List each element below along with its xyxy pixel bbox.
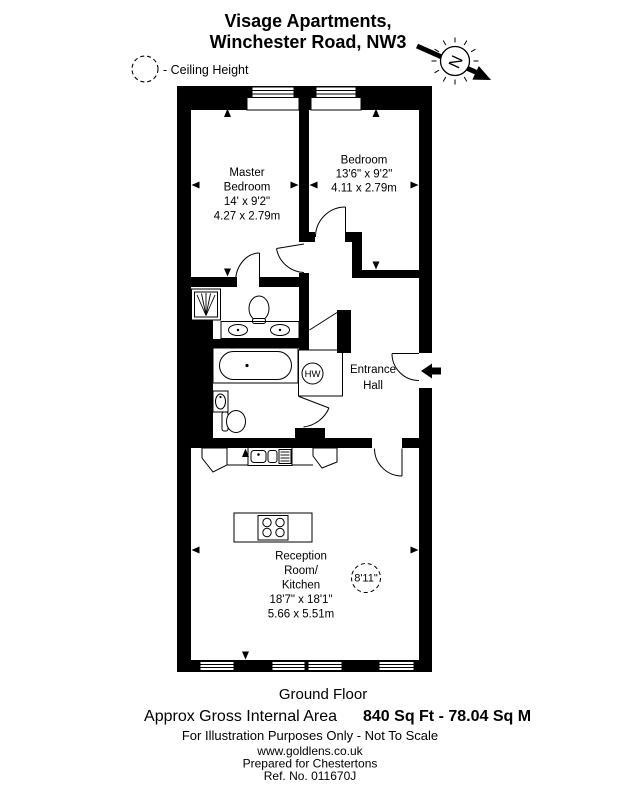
master-bedroom-name-line1: Master	[229, 167, 264, 179]
entrance-arrow-icon	[421, 364, 441, 379]
bedroom-dims-metric: 4.11 x 2.79m	[331, 183, 397, 195]
ceiling-height-legend: - Ceiling Height	[132, 56, 249, 82]
hw-label: HW	[305, 369, 321, 380]
master-bedroom-dims-imperial: 14' x 9'2"	[224, 196, 270, 208]
reception-line3: Kitchen	[282, 580, 320, 592]
toilet-icon-bathroom	[222, 411, 246, 433]
ensuite-door	[236, 253, 260, 282]
master-bedroom-dims-metric: 4.27 x 2.79m	[214, 211, 280, 223]
bathroom-door	[299, 397, 329, 428]
floor-label: Ground Floor	[279, 686, 367, 703]
bedroom-name: Bedroom	[341, 155, 388, 167]
bedroom-label: Bedroom 13'6" x 9'2" 4.11 x 2.79m	[331, 155, 397, 195]
reference-number: Ref. No. 011670J	[264, 769, 357, 783]
master-bedroom-label: Master Bedroom 14' x 9'2" 4.27 x 2.79m	[214, 167, 280, 223]
shower-icon	[192, 289, 221, 320]
entrance-hall-line1: Entrance	[350, 364, 396, 376]
bedroom-door	[316, 207, 346, 237]
kitchen-sink-icon	[248, 448, 292, 466]
lobby-door	[310, 313, 342, 331]
footer: Ground Floor Approx Gross Internal Area …	[144, 686, 531, 783]
disclaimer: For Illustration Purposes Only - Not To …	[182, 728, 438, 743]
kitchen-counter	[202, 448, 337, 473]
hot-water-cupboard: HW	[299, 350, 343, 396]
reception-label: Reception Room/ Kitchen 18'7" x 18'1" 5.…	[268, 551, 334, 621]
washbasin-icon	[213, 391, 228, 412]
legend-label: - Ceiling Height	[163, 63, 249, 77]
corner-unit-right	[313, 448, 337, 468]
hall-to-reception-door	[375, 449, 403, 477]
entrance-hall-line2: Hall	[363, 380, 383, 392]
north-arrow-icon: N	[417, 38, 491, 85]
master-bedroom-name-line2: Bedroom	[224, 182, 271, 194]
page-title: Visage Apartments, Winchester Road, NW3	[210, 11, 407, 52]
vanity-double-sink-icon	[221, 322, 299, 339]
toilet-icon-ensuite	[249, 296, 269, 324]
ceiling-height-value: 8'11"	[354, 573, 378, 585]
floorplan-canvas: Visage Apartments, Winchester Road, NW3 …	[0, 0, 628, 798]
master-bedroom-door	[277, 244, 305, 273]
corner-unit-left	[202, 448, 227, 472]
floorplan-page: Visage Apartments, Winchester Road, NW3 …	[0, 0, 628, 798]
reception-dims-imperial: 18'7" x 18'1"	[269, 594, 332, 606]
dashed-circle-icon	[132, 56, 158, 82]
kitchen-island-hob-icon	[234, 513, 312, 542]
reception-line2: Room/	[284, 565, 319, 577]
bathtub-icon	[213, 348, 298, 383]
entrance-door	[392, 354, 419, 381]
entrance-hall-label: Entrance Hall	[350, 364, 396, 392]
area-value: 840 Sq Ft - 78.04 Sq M	[363, 708, 531, 725]
ceiling-height-marker: 8'11"	[352, 564, 381, 593]
title-line1: Visage Apartments,	[224, 11, 391, 31]
reception-dims-metric: 5.66 x 5.51m	[268, 609, 334, 621]
title-line2: Winchester Road, NW3	[210, 32, 407, 52]
area-label: Approx Gross Internal Area	[144, 708, 337, 725]
bedroom-dims-imperial: 13'6" x 9'2"	[336, 169, 393, 181]
reception-line1: Reception	[275, 551, 327, 563]
